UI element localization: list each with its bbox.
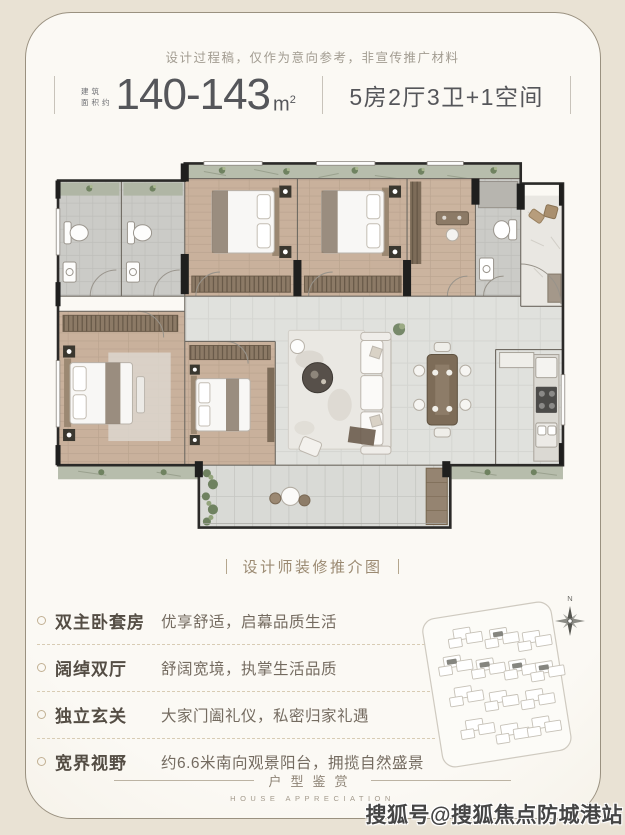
feature-label: 独立玄关 — [55, 702, 161, 727]
feature-row: 双主卧套房 优享舒适，启幕品质生活 — [37, 598, 435, 645]
feature-row: 阔绰双厅 舒阔宽境，执掌生活品质 — [37, 645, 435, 692]
plan-caption: 设计师装修推介图 — [0, 556, 625, 577]
area-prefix-line2: 面积约 — [81, 99, 113, 107]
bullet-icon — [37, 757, 46, 766]
divider-bar — [570, 76, 572, 114]
watermark-text: 搜狐号@搜狐焦点防城港站 — [366, 799, 623, 829]
divider-bar — [322, 76, 324, 114]
site-boundary — [421, 600, 577, 769]
caption-bar — [226, 559, 228, 574]
feature-row: 独立玄关 大家门阖礼仪，私密归家礼遇 — [37, 692, 435, 739]
bullet-icon — [37, 663, 46, 672]
bullet-icon — [37, 616, 46, 625]
feature-desc: 约6.6米南向观景阳台，拥揽自然盛景 — [161, 751, 424, 773]
svg-text:N: N — [567, 594, 572, 603]
feature-label: 双主卧套房 — [55, 608, 161, 633]
site-plan-map: N — [420, 585, 616, 781]
footer-line — [371, 780, 511, 781]
footer-line — [114, 780, 254, 781]
divider-bar — [54, 76, 56, 114]
bullet-icon — [37, 710, 46, 719]
area-group: 建筑 面积约 140-143 m2 — [81, 76, 296, 114]
feature-desc: 大家门阖礼仪，私密归家礼遇 — [161, 704, 369, 726]
area-prefix-line1: 建筑 — [81, 88, 113, 96]
caption-text: 设计师装修推介图 — [242, 556, 382, 577]
area-prefix: 建筑 面积约 — [81, 88, 113, 106]
floor-plan — [53, 160, 568, 535]
disclaimer-text: 设计过程稿，仅作为意向参考，非宣传推广材料 — [0, 47, 625, 66]
compass-icon: N — [555, 594, 585, 636]
area-value: 140-143 — [116, 76, 270, 114]
living-room — [288, 323, 405, 457]
layout-spec: 5房2厅3卫+1空间 — [349, 78, 544, 112]
feature-desc: 舒阔宽境，执掌生活品质 — [161, 657, 337, 679]
caption-bar — [398, 559, 400, 574]
floor-plan-container — [53, 160, 568, 540]
footer-title: 户型鉴赏 — [268, 771, 356, 790]
feature-label: 阔绰双厅 — [55, 655, 161, 680]
feature-list: 双主卧套房 优享舒适，启幕品质生活 阔绰双厅 舒阔宽境，执掌生活品质 独立玄关 … — [37, 598, 435, 785]
feature-desc: 优享舒适，启幕品质生活 — [161, 610, 337, 632]
area-unit: m2 — [273, 91, 296, 114]
title-row: 建筑 面积约 140-143 m2 5房2厅3卫+1空间 — [0, 76, 625, 114]
site-plan-container: N — [420, 585, 616, 786]
master-bedroom — [63, 311, 178, 441]
poster-page: 设计过程稿，仅作为意向参考，非宣传推广材料 建筑 面积约 140-143 m2 … — [0, 0, 625, 835]
